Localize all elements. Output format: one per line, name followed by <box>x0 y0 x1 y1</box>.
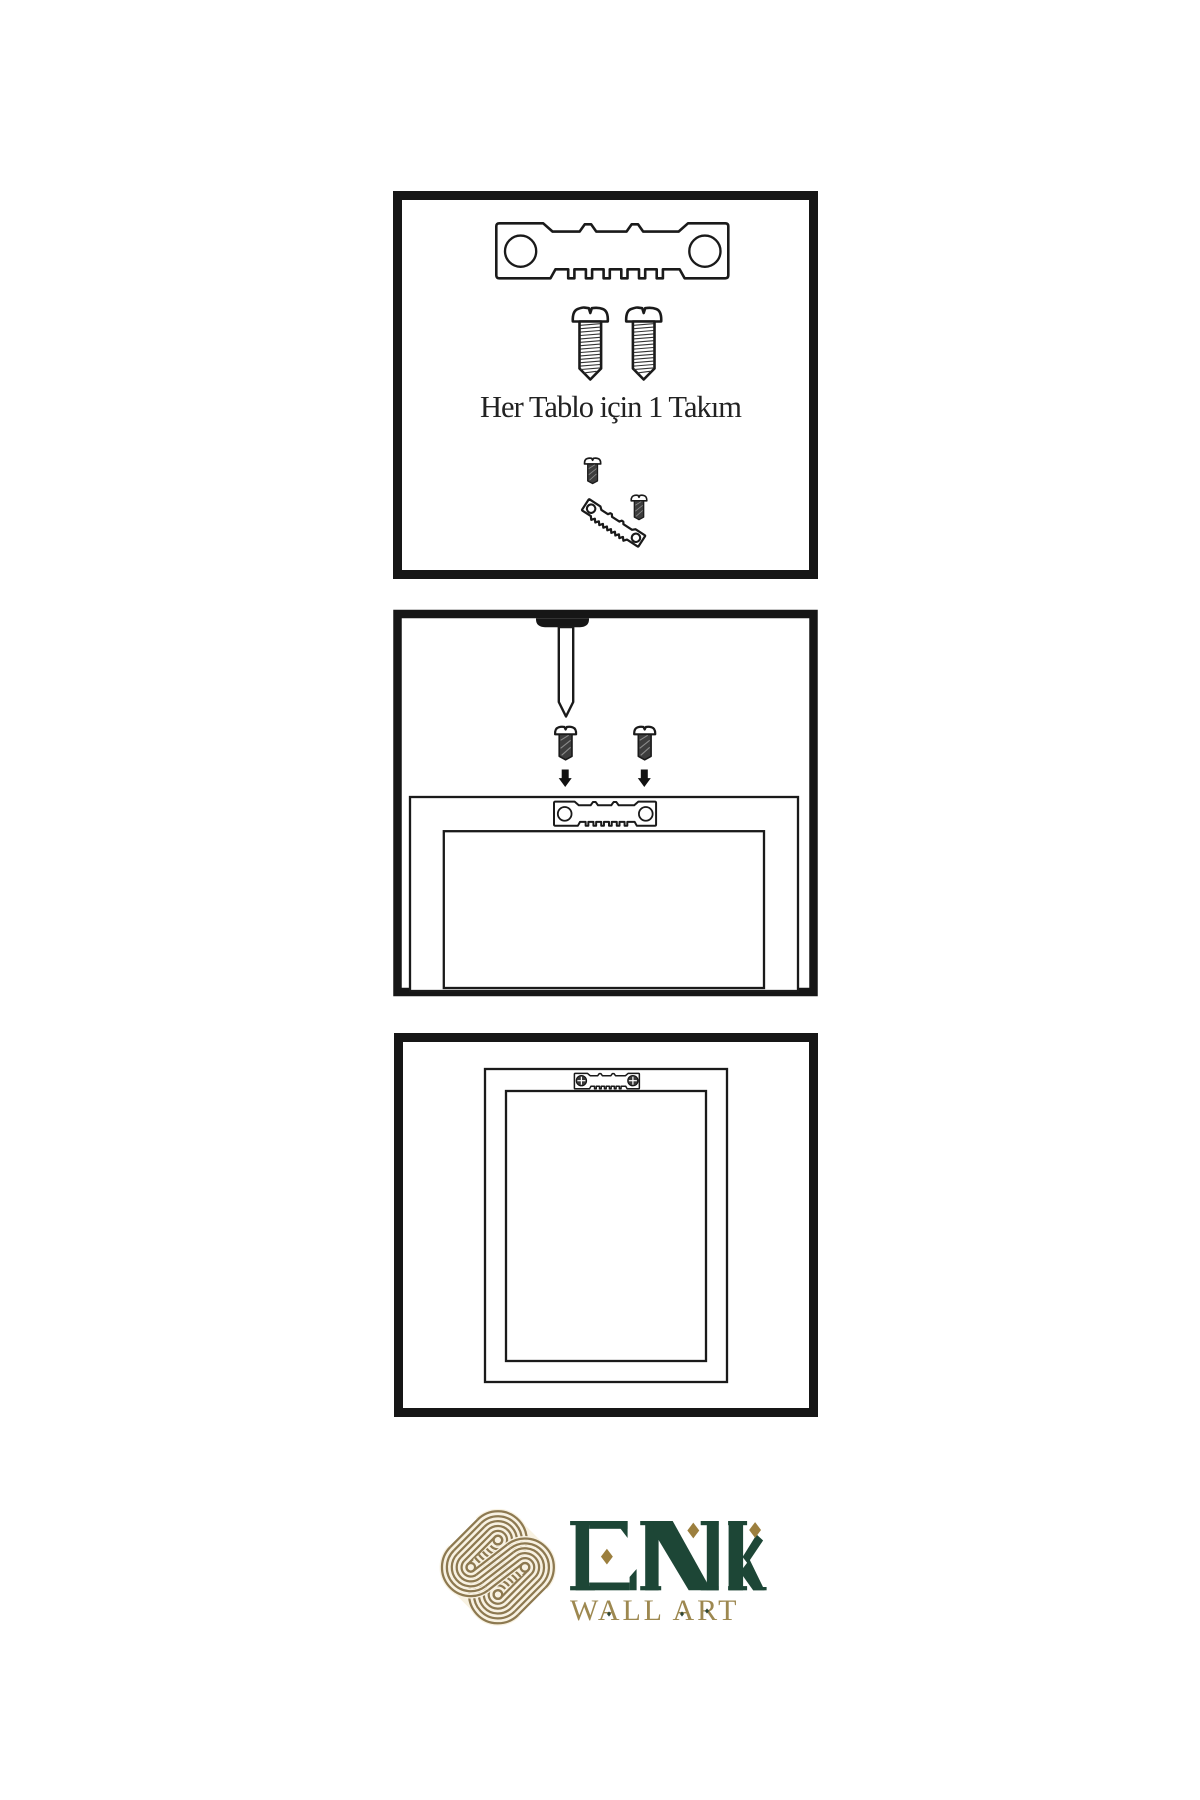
svg-text:WALL ART: WALL ART <box>570 1594 738 1627</box>
svg-text:Her Tablo için 1 Takım: Her Tablo için 1 Takım <box>480 390 742 424</box>
